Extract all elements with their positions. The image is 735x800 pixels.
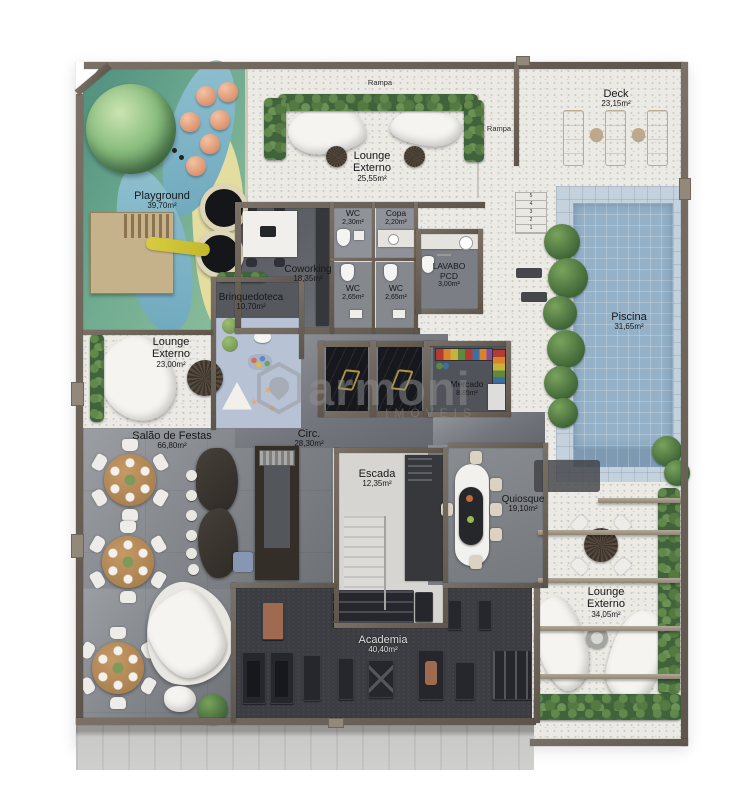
wall <box>478 229 483 314</box>
gym-machine <box>303 655 321 701</box>
chair <box>570 556 590 576</box>
room-label-lounge-top: Lounge Externo 25,55m² <box>344 150 400 184</box>
room-area: 39,70m² <box>147 202 176 211</box>
bar-counter <box>198 508 238 578</box>
armchair <box>164 686 196 712</box>
play-ball <box>218 82 238 102</box>
grab-bar <box>437 254 451 256</box>
wc-basin <box>350 310 362 318</box>
wall <box>443 448 448 628</box>
closet-shelves <box>408 458 432 486</box>
wall <box>334 623 448 628</box>
wall <box>76 718 536 725</box>
sun-lounger <box>647 110 668 166</box>
wall <box>330 258 418 261</box>
wall <box>334 448 339 628</box>
room-name: WC <box>346 284 360 294</box>
wall <box>299 277 304 359</box>
gym-bench <box>448 600 462 630</box>
room-area: 66,80m² <box>157 442 186 451</box>
wall <box>416 229 421 314</box>
pergola-beam <box>598 498 682 503</box>
desk-chair <box>274 258 285 267</box>
sink <box>354 231 364 240</box>
room-area: 12,35m² <box>362 480 391 489</box>
grill-food <box>467 516 474 523</box>
bar-stool <box>186 490 197 501</box>
wall <box>416 309 483 314</box>
wall-pillar <box>516 56 530 66</box>
step-number: 3 <box>516 209 546 217</box>
wall <box>448 443 548 448</box>
chair <box>470 556 482 569</box>
weight-rack <box>332 590 414 626</box>
room-label-lounge-bottom: Lounge Externo 34,05m² <box>578 586 634 620</box>
toilet <box>337 229 350 246</box>
bar-stool <box>186 548 197 559</box>
grill-food <box>466 495 473 502</box>
bar-stool <box>186 510 197 521</box>
wall <box>534 583 540 723</box>
wall-pillar <box>71 534 84 558</box>
wall <box>416 229 483 234</box>
deck-bench <box>521 292 547 302</box>
wall <box>681 62 688 746</box>
chair <box>120 521 136 533</box>
room-area: 19,10m² <box>508 505 537 514</box>
wall <box>530 739 688 746</box>
watermark: armoni IMÓVEIS <box>256 352 516 424</box>
room-label-wc-mid-right: WC 2,65m² <box>385 284 407 301</box>
ramp-label: Rampa <box>368 78 392 87</box>
bar-stool <box>188 564 199 575</box>
kitchen-inner <box>264 464 290 548</box>
ramp-label: Rampa <box>487 124 511 133</box>
bush <box>547 330 585 368</box>
wall <box>231 583 236 723</box>
wall <box>235 202 241 334</box>
room-area: 34,05m² <box>591 611 620 620</box>
side-table <box>632 128 645 141</box>
room-area: 3,00m² <box>438 281 460 289</box>
step-number: 2 <box>516 217 546 225</box>
room-name: LAVABO PCD <box>426 262 472 281</box>
side-table <box>590 128 603 141</box>
dining-table <box>86 520 170 604</box>
watermark-brand: armoni <box>308 365 471 412</box>
wall <box>372 202 375 334</box>
figure <box>172 148 177 153</box>
floor-plan-canvas: 5 4 3 2 1 <box>0 0 735 800</box>
wall <box>318 341 434 347</box>
room-label-piscina: Piscina 31,65m² <box>611 311 646 332</box>
hedge <box>534 694 682 720</box>
bush <box>543 296 577 330</box>
playground-edge <box>245 66 248 206</box>
chair <box>151 488 169 508</box>
chair <box>120 591 136 603</box>
chair <box>470 451 482 464</box>
room-label-copa: Copa 2,20m² <box>385 209 407 226</box>
wall <box>514 62 519 166</box>
pergola-beam <box>538 578 680 583</box>
toilet <box>384 264 397 281</box>
wall <box>76 94 83 724</box>
kitchen-grill <box>259 450 295 466</box>
hedge <box>464 100 484 162</box>
room-area: 2,65m² <box>385 294 407 302</box>
step-number: 4 <box>516 201 546 209</box>
chair <box>490 478 502 491</box>
play-ball <box>180 112 200 132</box>
sidewalk <box>76 725 534 770</box>
hedge <box>658 488 680 694</box>
figure <box>179 155 184 160</box>
chair <box>612 556 632 576</box>
table-top <box>104 454 156 506</box>
dumbbell-rack <box>415 592 433 622</box>
room-label-academia: Academia 40,40m² <box>359 634 408 655</box>
room-label-deck: Deck 23,15m² <box>601 88 630 109</box>
pool-steps: 5 4 3 2 1 <box>515 192 547 234</box>
bar-stool <box>186 530 197 541</box>
wall-pillar <box>679 178 691 200</box>
bush <box>544 366 578 400</box>
sun-lounger <box>605 110 626 166</box>
room-area: 23,00m² <box>156 361 185 370</box>
chair <box>110 627 126 639</box>
copa-sink <box>388 234 399 245</box>
hedge <box>264 98 286 160</box>
room-name: Lounge Externo <box>344 150 400 175</box>
machine-seat <box>425 661 437 685</box>
room-name: Copa <box>386 209 406 219</box>
patio-table-set <box>559 503 643 587</box>
wc-basin <box>393 310 405 318</box>
play-structure-lattice <box>124 214 170 238</box>
bush <box>544 224 580 260</box>
room-area: 2,30m² <box>342 219 364 227</box>
room-label-wc-top: WC 2,30m² <box>342 209 364 226</box>
tree-canopy <box>86 84 176 174</box>
sun-lounger <box>563 110 584 166</box>
room-area: 40,40m² <box>368 646 397 655</box>
stair-rail <box>384 516 386 610</box>
room-area: 18,35m² <box>293 275 322 284</box>
room-label-escada: Escada 12,35m² <box>359 468 396 489</box>
squat-rack <box>492 650 532 700</box>
deck-bench <box>516 268 542 278</box>
wall <box>83 330 213 335</box>
play-ball <box>210 110 230 130</box>
monitor <box>260 226 276 237</box>
bush <box>548 398 578 428</box>
bar-stool <box>186 470 197 481</box>
hedge <box>278 94 478 111</box>
room-area: 28,30m² <box>294 440 323 449</box>
wall <box>443 583 543 588</box>
wall-pillar <box>328 718 344 728</box>
room-area: 10,70m² <box>236 303 265 312</box>
pergola-beam <box>538 674 680 679</box>
play-ball <box>200 134 220 154</box>
lavabo-sink <box>459 236 473 250</box>
room-label-lavabo-pcd: LAVABO PCD 3,00m² <box>426 262 472 289</box>
room-label-lounge-left: Lounge Externo 23,00m² <box>143 336 199 370</box>
room-area: 31,65m² <box>614 323 643 332</box>
step-number: 1 <box>516 225 546 233</box>
room-name: WC <box>346 209 360 219</box>
play-ball <box>196 86 216 106</box>
pergola-beam <box>538 626 680 631</box>
kitchen-sink <box>233 552 253 572</box>
table-top <box>92 642 144 694</box>
pergola-beam <box>538 530 680 535</box>
exercise-mat <box>262 602 284 640</box>
room-area: 2,65m² <box>342 294 364 302</box>
room-label-brinquedoteca: Brinquedoteca 10,70m² <box>201 292 301 312</box>
coffee-table <box>404 146 425 167</box>
step-number: 5 <box>516 193 546 201</box>
gym-treadmill <box>242 652 266 704</box>
chair <box>139 676 157 696</box>
gym-machine <box>455 662 475 700</box>
chair <box>490 503 502 516</box>
room-name: WC <box>389 284 403 294</box>
treadmill-belt <box>275 661 288 697</box>
gym-machine <box>418 650 444 700</box>
room-area: 23,15m² <box>601 100 630 109</box>
desk-chair <box>246 258 257 267</box>
watermark-tagline: IMÓVEIS <box>356 406 506 420</box>
wall <box>235 328 420 334</box>
bush <box>548 258 588 298</box>
wall <box>334 448 448 453</box>
gym-bench <box>478 600 492 630</box>
pouf <box>222 336 238 352</box>
room-label-playground: Playground 39,70m² <box>134 190 190 211</box>
room-label-wc-mid-left: WC 2,65m² <box>342 284 364 301</box>
room-name: Lounge Externo <box>578 586 634 611</box>
wall-pillar <box>71 382 84 406</box>
wall <box>428 341 510 346</box>
bar-counter <box>196 448 238 512</box>
room-area: 2,20m² <box>385 219 407 227</box>
play-ball <box>186 156 206 176</box>
table-top <box>102 536 154 588</box>
gym-treadmill <box>270 652 294 704</box>
room-area: 25,55m² <box>357 175 386 184</box>
room-name: Lounge Externo <box>143 336 199 361</box>
wall <box>84 62 683 69</box>
wall <box>543 443 548 588</box>
treadmill-belt <box>247 661 260 697</box>
room-label-salao: Salão de Festas 66,80m² <box>132 430 212 451</box>
chair <box>490 528 502 541</box>
room-label-quiosque: Quiosque 19,10m² <box>502 494 545 514</box>
wall <box>231 583 336 588</box>
brand-logo-icon <box>256 362 302 414</box>
toilet <box>341 264 354 281</box>
chair <box>149 570 167 590</box>
room-label-circ: Circ. 28,30m² <box>294 428 323 449</box>
hedge <box>90 334 104 422</box>
gym-machine <box>338 658 354 700</box>
gym-machine <box>368 660 394 698</box>
chair <box>110 697 126 709</box>
room-label-coworking: Coworking 18,35m² <box>284 264 331 284</box>
